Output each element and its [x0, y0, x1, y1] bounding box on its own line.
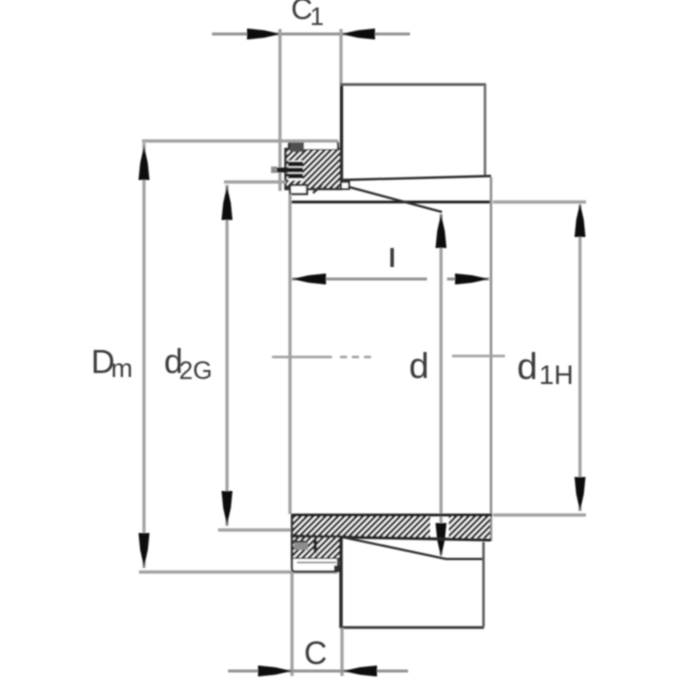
- svg-text:d: d: [517, 346, 538, 387]
- svg-text:1H: 1H: [539, 360, 574, 390]
- svg-text:m: m: [111, 353, 133, 383]
- svg-text:d: d: [409, 345, 429, 386]
- svg-text:C: C: [304, 635, 327, 671]
- svg-text:l: l: [389, 243, 396, 273]
- svg-text:1: 1: [310, 3, 324, 31]
- svg-text:2G: 2G: [179, 357, 212, 385]
